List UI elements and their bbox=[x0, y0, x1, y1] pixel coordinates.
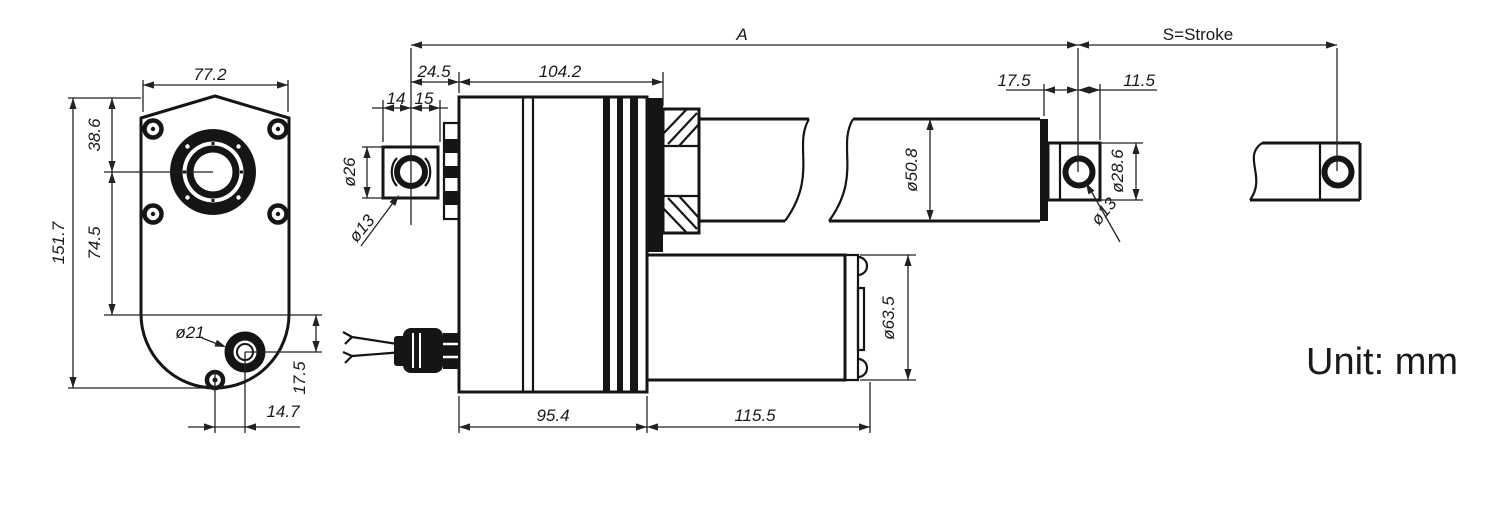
motor bbox=[647, 255, 867, 380]
screw-hole-mid-right bbox=[270, 206, 287, 223]
side-view: A S=Stroke 24.5 104.2 14 15 ø26 bbox=[340, 25, 1360, 433]
tube-break-line-right bbox=[829, 119, 853, 221]
technical-drawing-page: 77.2 151.7 38.6 74.5 17.5 14.7 ø21 bbox=[0, 0, 1500, 506]
dim-overall-length: A bbox=[735, 25, 747, 44]
dim-rodend-tab: 11.5 bbox=[1123, 71, 1155, 90]
screw-hole-top-left bbox=[145, 121, 162, 138]
dim-pin-right: 15 bbox=[415, 89, 434, 108]
dim-boss-dia: ø21 bbox=[175, 323, 204, 342]
outer-tube bbox=[699, 119, 1048, 221]
dim-boss-horizontal: 14.7 bbox=[266, 402, 300, 421]
dim-motor-length: 115.5 bbox=[734, 406, 776, 425]
dim-body-length: 95.4 bbox=[536, 406, 569, 425]
dim-front-width: 77.2 bbox=[193, 65, 227, 84]
cable-assembly bbox=[343, 328, 458, 373]
connector-fitting bbox=[443, 333, 458, 369]
dim-rodeye-od: ø28.6 bbox=[1108, 149, 1127, 193]
dim-clevis-od: ø26 bbox=[340, 157, 359, 187]
dim-tube-dia: ø50.8 bbox=[902, 148, 921, 192]
dim-housing-length: 104.2 bbox=[539, 62, 582, 81]
motor-shaft-boss bbox=[858, 288, 864, 350]
dim-boss-vertical: 17.5 bbox=[290, 361, 309, 395]
dim-clevis-hole: ø13 bbox=[345, 211, 379, 246]
dim-stroke: S=Stroke bbox=[1163, 25, 1233, 44]
rod-break-line bbox=[1250, 143, 1262, 200]
tube-break-line-left bbox=[785, 119, 809, 221]
rod-end-extended bbox=[1250, 143, 1360, 200]
dim-motor-dia: ø63.5 bbox=[879, 296, 898, 340]
housing-end-cap bbox=[646, 98, 663, 252]
gear-housing bbox=[459, 97, 663, 392]
drawing-canvas: 77.2 151.7 38.6 74.5 17.5 14.7 ø21 bbox=[0, 0, 1500, 506]
dim-front-height: 151.7 bbox=[49, 221, 68, 264]
side-view-extension-lines bbox=[362, 48, 1337, 433]
connector-body bbox=[403, 328, 443, 373]
dim-center-to-step: 74.5 bbox=[85, 226, 104, 260]
dim-clevis-to-face: 24.5 bbox=[416, 62, 451, 81]
dim-pin-left: 14 bbox=[387, 89, 406, 108]
dim-rodend-offset: 17.5 bbox=[997, 71, 1031, 90]
wire-ends bbox=[343, 332, 352, 363]
screw-hole-top-right bbox=[270, 121, 287, 138]
side-view-dimensions: A S=Stroke 24.5 104.2 14 15 ø26 bbox=[340, 25, 1337, 431]
screw-hole-mid-left bbox=[145, 206, 162, 223]
rod-eye-retracted bbox=[1066, 159, 1093, 186]
tube-retaining-nut bbox=[663, 109, 699, 233]
front-view: 77.2 151.7 38.6 74.5 17.5 14.7 ø21 bbox=[49, 65, 322, 433]
motor-brush-cap-top bbox=[858, 257, 867, 275]
dim-top-to-center: 38.6 bbox=[85, 118, 104, 152]
rod-eye-extended bbox=[1325, 159, 1352, 186]
unit-note: Unit: mm bbox=[1306, 341, 1458, 383]
motor-brush-cap-bottom bbox=[858, 359, 867, 377]
